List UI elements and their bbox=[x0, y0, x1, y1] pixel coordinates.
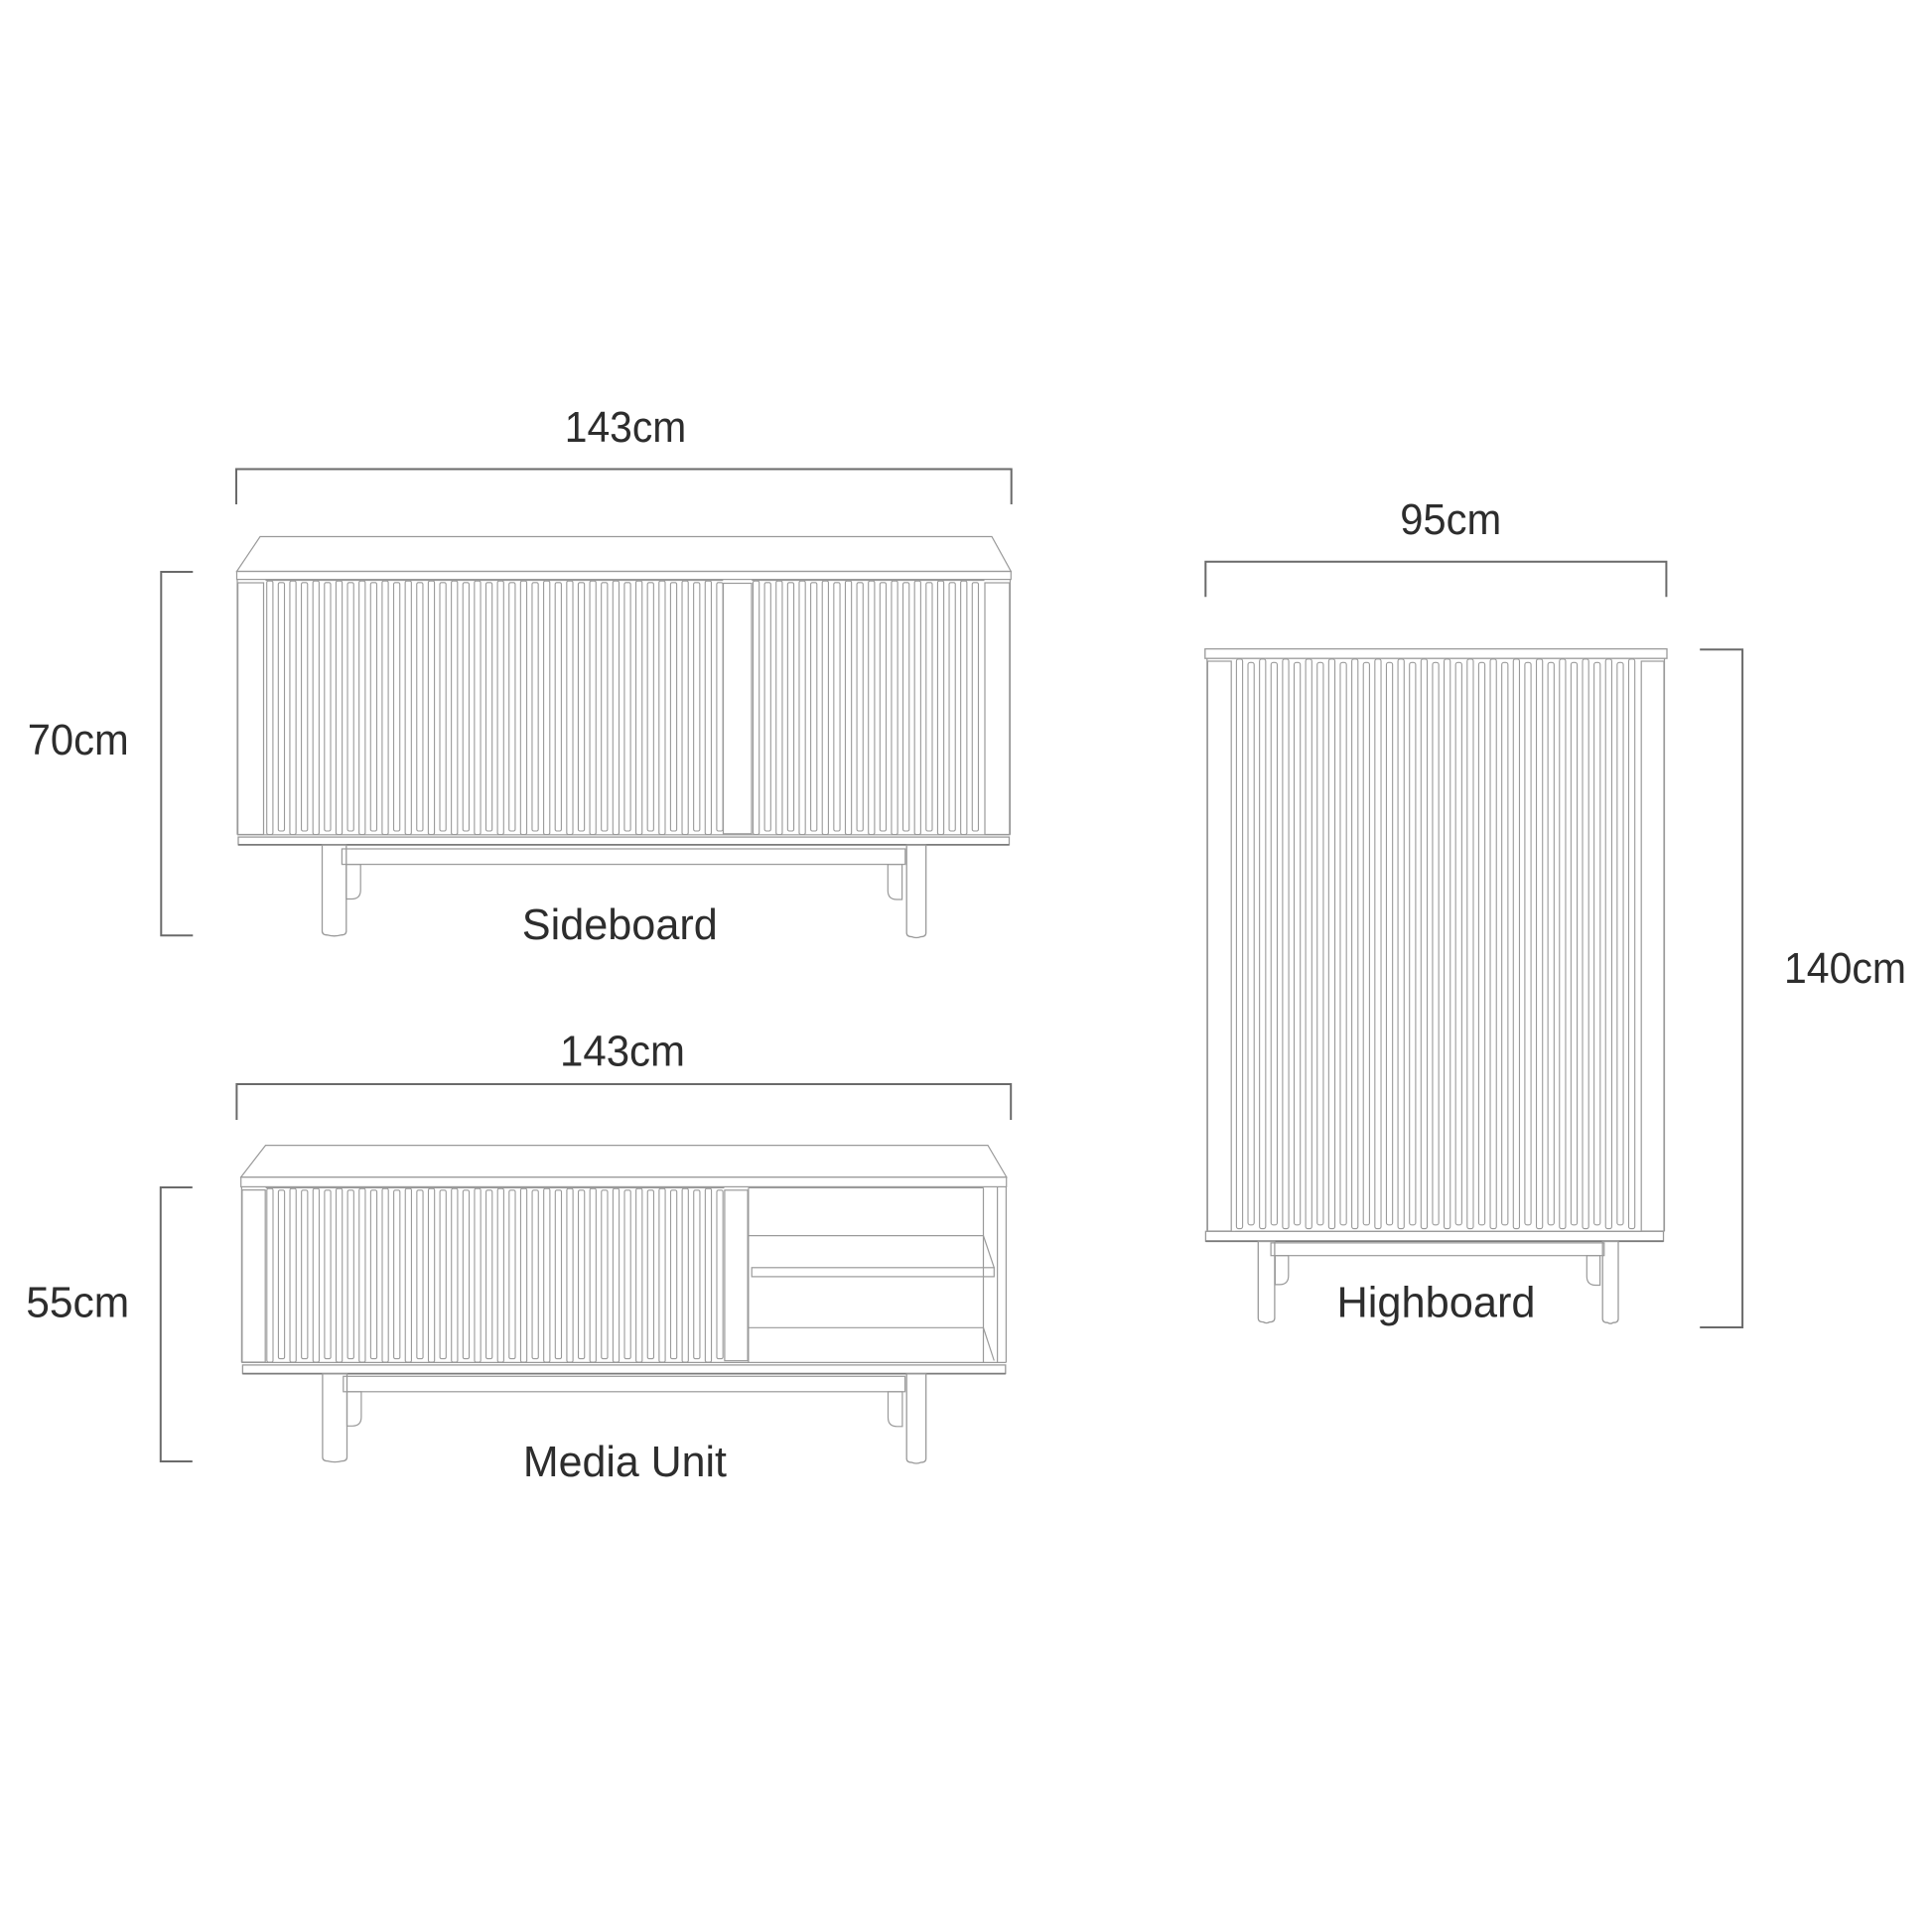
svg-text:140cm: 140cm bbox=[1784, 944, 1906, 993]
svg-text:55cm: 55cm bbox=[26, 1279, 129, 1327]
svg-text:95cm: 95cm bbox=[1400, 495, 1501, 544]
svg-text:Highboard: Highboard bbox=[1337, 1279, 1536, 1327]
svg-text:70cm: 70cm bbox=[28, 716, 129, 764]
svg-text:Media Unit: Media Unit bbox=[523, 1438, 727, 1486]
svg-text:Sideboard: Sideboard bbox=[522, 900, 718, 949]
svg-text:143cm: 143cm bbox=[560, 1028, 685, 1076]
svg-text:143cm: 143cm bbox=[565, 403, 687, 452]
